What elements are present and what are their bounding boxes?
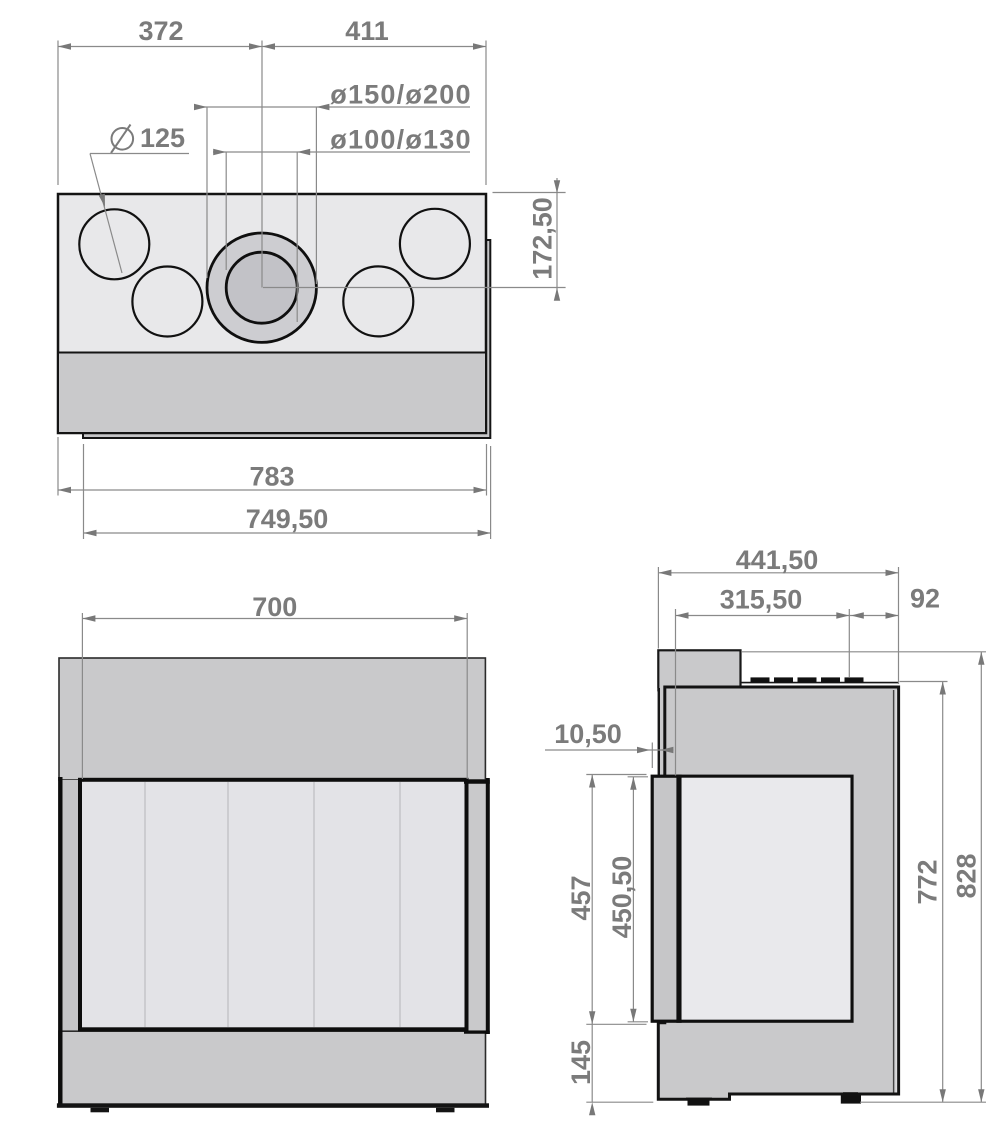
svg-text:372: 372 (138, 16, 183, 46)
svg-text:ø100/ø130: ø100/ø130 (330, 125, 471, 155)
svg-text:749,50: 749,50 (246, 504, 329, 534)
svg-text:828: 828 (952, 853, 982, 898)
svg-text:ø150/ø200: ø150/ø200 (330, 80, 471, 110)
svg-text:172,50: 172,50 (528, 197, 558, 280)
svg-text:145: 145 (566, 1040, 596, 1085)
svg-text:315,50: 315,50 (720, 585, 803, 615)
svg-text:125: 125 (140, 123, 185, 153)
svg-text:700: 700 (252, 592, 297, 622)
svg-text:783: 783 (249, 462, 294, 492)
svg-text:411: 411 (345, 16, 389, 46)
svg-text:92: 92 (910, 584, 940, 614)
svg-text:10,50: 10,50 (554, 719, 622, 749)
svg-text:772: 772 (913, 859, 943, 904)
svg-text:457: 457 (566, 875, 596, 920)
svg-text:441,50: 441,50 (736, 545, 819, 575)
svg-text:450,50: 450,50 (607, 856, 637, 939)
